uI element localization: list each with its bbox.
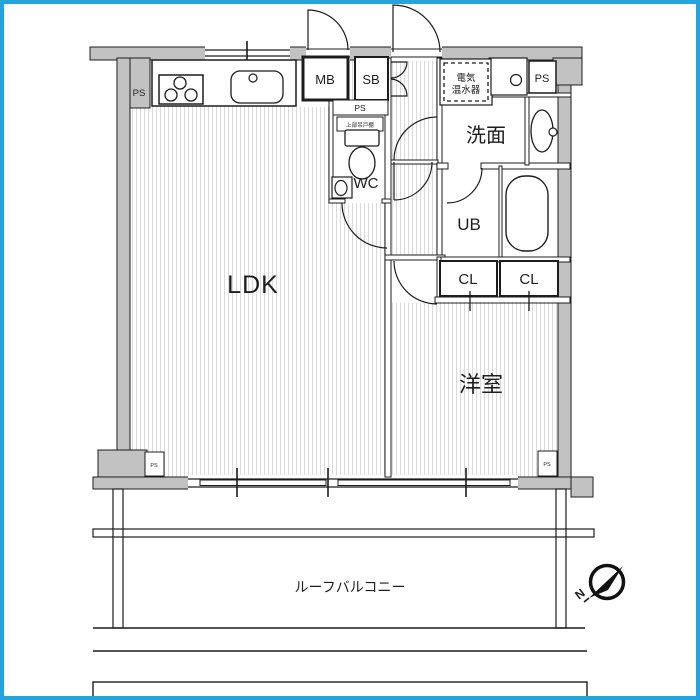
ps-bottom-left-label: PS [150,463,158,469]
upper-cupboard-label: 上部吊戸棚 [346,121,374,129]
floor-hall [392,60,438,257]
room-label-washroom: 洗面 [466,124,506,147]
wall-mid-vertical [385,58,391,477]
wall-hall-door-header [391,160,438,164]
wall-bottom-right-step [571,477,593,497]
wall-washroom-divider [525,93,529,165]
room-label-meter-box: MB [315,72,335,87]
room-label-closet-b: CL [519,271,538,288]
gas-stove-icon [159,75,203,104]
wall-wc-bottom-b [382,199,391,203]
room-label-closet-a: CL [458,271,477,288]
ps-wc-top-label: PS [354,103,366,113]
floor-plan-svg: N LDK 洋室 洗面 UB WC CL CL MB SB ルーフバルコニー P… [0,0,700,700]
window-pane-left [200,480,326,486]
floor-plan-image: N LDK 洋室 洗面 UB WC CL CL MB SB ルーフバルコニー P… [0,0,700,700]
kitchen-sink-icon [231,71,283,103]
hand-basin-icon [332,177,352,198]
wall-ub-divider [499,166,502,257]
wall-right [558,85,571,477]
wall-left [117,58,130,477]
room-label-unit-bath: UB [457,215,481,234]
washer-pan-icon [491,58,527,95]
bathtub-icon [506,176,548,251]
window-pane-right [338,480,510,486]
water-heater-label-2: 温水器 [452,84,481,96]
wall-western-room-top [435,297,570,303]
room-label-shoe-box: SB [362,72,379,87]
wall-washroom-bottom-a [437,163,448,169]
room-label-western-room: 洋室 [459,372,503,397]
room-label-wc: WC [354,175,379,192]
wall-corridor-bottom [385,255,445,260]
balcony-parapet [93,682,587,697]
ps-right-top-label: PS [535,73,550,85]
room-label-ldk: LDK [227,271,279,299]
ps-bottom-right-label: PS [543,462,551,468]
water-heater-label-1: 電気 [456,72,476,84]
kitchen [152,60,296,106]
wall-bottom-left-block [98,450,147,477]
room-label-roof-balcony: ルーフバルコニー [295,579,406,595]
wall-wc-bottom-a [329,199,345,203]
balcony-post-left [113,489,123,628]
entrance-opening [391,46,442,61]
balcony-post-right [556,489,566,628]
ps-kitchen-label: PS [133,88,146,99]
wall-top-right-block [553,58,582,85]
